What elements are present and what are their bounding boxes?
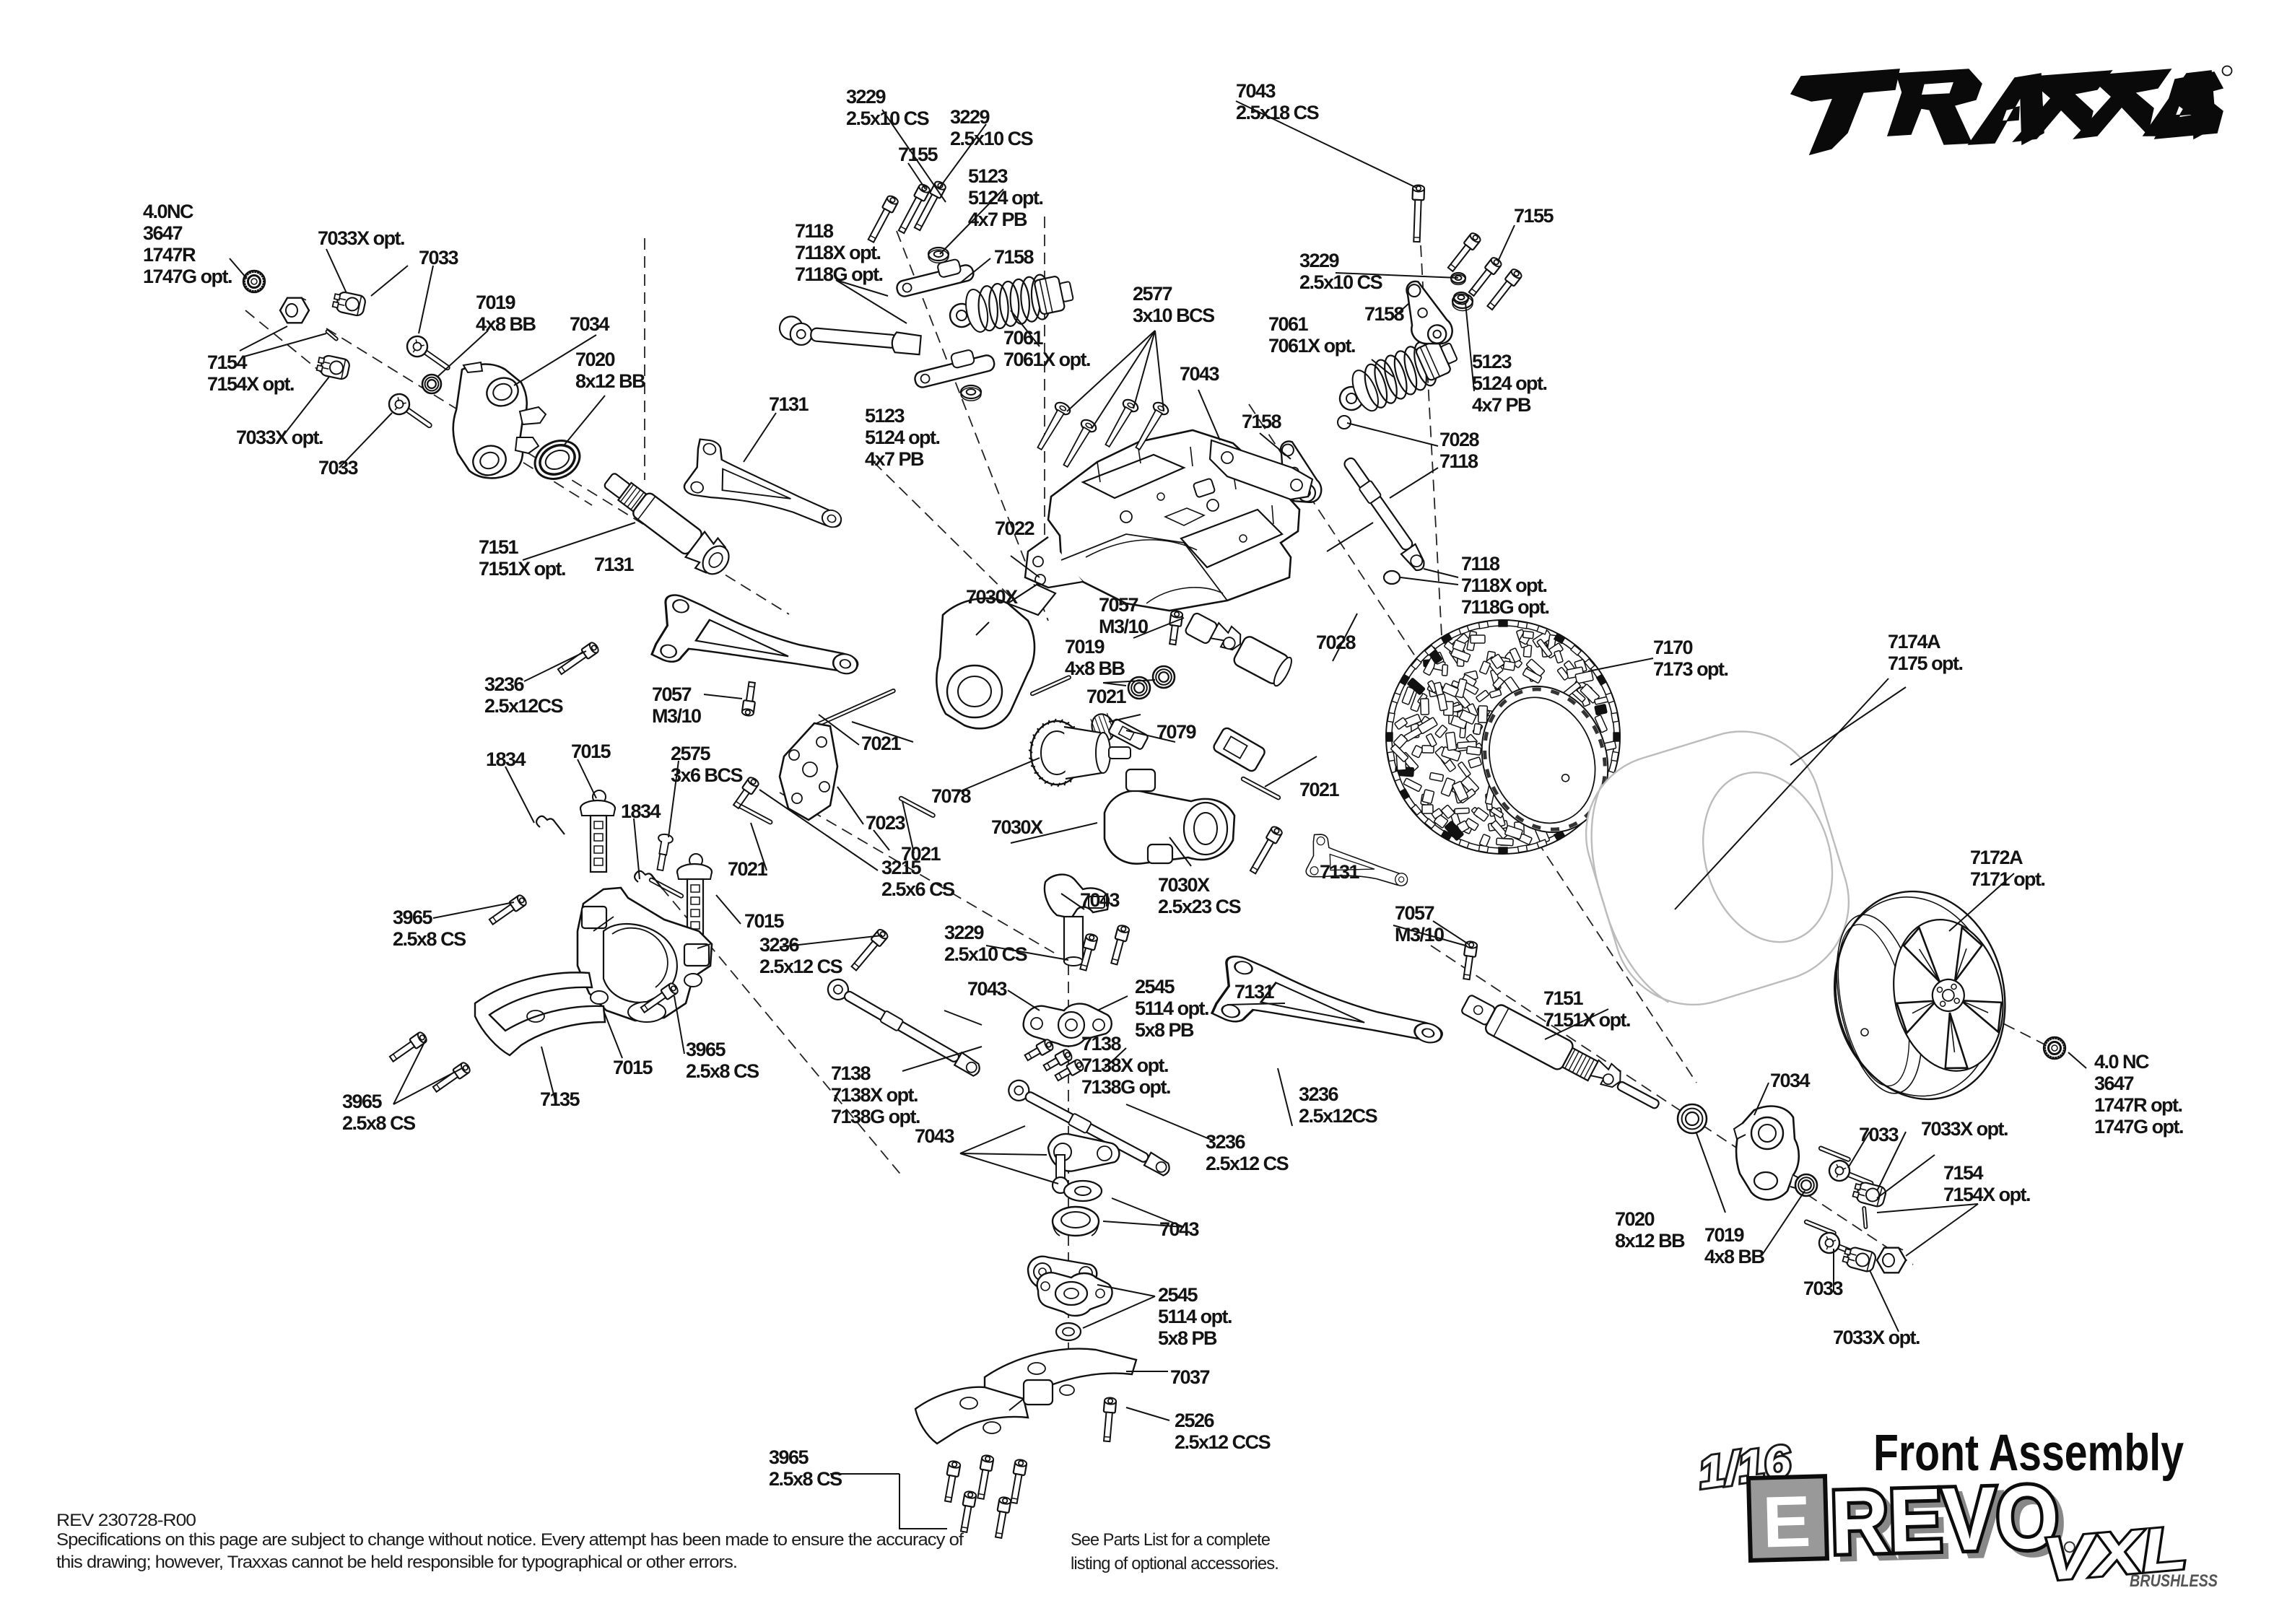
svg-text:7155: 7155 — [1514, 205, 1554, 227]
svg-text:7033X opt.: 7033X opt. — [236, 427, 323, 448]
svg-text:7023: 7023 — [866, 812, 906, 834]
svg-text:7015: 7015 — [613, 1057, 653, 1078]
svg-text:7034: 7034 — [1770, 1070, 1811, 1091]
svg-text:7131: 7131 — [594, 554, 635, 575]
svg-text:Specifications on this page ar: Specifications on this page are subject … — [56, 1530, 964, 1550]
svg-text:1834: 1834 — [486, 748, 526, 770]
svg-text:7022: 7022 — [995, 518, 1034, 539]
svg-text:7131: 7131 — [769, 393, 809, 415]
svg-text:7021: 7021 — [901, 843, 941, 865]
svg-text:7028: 7028 — [1316, 632, 1356, 653]
svg-text:7131: 7131 — [1320, 861, 1360, 883]
svg-text:7043: 7043 — [1159, 1218, 1200, 1240]
svg-text:See Parts List for a complete: See Parts List for a complete — [1071, 1530, 1271, 1550]
svg-text:7033: 7033 — [318, 457, 359, 479]
svg-text:7037: 7037 — [1170, 1366, 1210, 1388]
svg-text:7078: 7078 — [931, 785, 972, 807]
svg-text:7033: 7033 — [1859, 1124, 1899, 1145]
svg-text:7043: 7043 — [967, 978, 1008, 1000]
svg-text:7033: 7033 — [419, 247, 459, 269]
svg-text:7030X: 7030X — [966, 586, 1018, 608]
svg-text:7043: 7043 — [1080, 889, 1120, 911]
svg-text:7158: 7158 — [1242, 411, 1282, 432]
svg-text:7033X opt.: 7033X opt. — [1833, 1327, 1920, 1348]
svg-text:7043: 7043 — [1180, 363, 1220, 385]
svg-text:7015: 7015 — [571, 741, 611, 762]
svg-text:7155: 7155 — [898, 144, 938, 165]
svg-text:7079: 7079 — [1156, 721, 1197, 743]
svg-text:7033: 7033 — [1803, 1278, 1844, 1299]
svg-text:7021: 7021 — [1086, 686, 1127, 707]
svg-text:1834: 1834 — [621, 800, 661, 822]
svg-text:7043: 7043 — [915, 1125, 955, 1147]
svg-text:7135: 7135 — [540, 1088, 580, 1110]
svg-text:7158: 7158 — [994, 246, 1034, 268]
svg-text:7021: 7021 — [728, 858, 768, 880]
svg-text:7015: 7015 — [744, 910, 785, 932]
svg-text:7021: 7021 — [1299, 779, 1340, 800]
svg-text:7033X opt.: 7033X opt. — [1921, 1118, 2008, 1140]
svg-text:E: E — [1761, 1481, 1812, 1563]
svg-text:7034: 7034 — [570, 313, 610, 335]
svg-text:listing of optional accessorie: listing of optional accessories. — [1071, 1554, 1278, 1573]
svg-text:BRUSHLESS: BRUSHLESS — [2130, 1571, 2218, 1591]
svg-text:7131: 7131 — [1234, 981, 1275, 1003]
svg-text:REV 230728-R00: REV 230728-R00 — [56, 1511, 196, 1530]
svg-text:7021: 7021 — [861, 733, 902, 754]
svg-text:7033X opt.: 7033X opt. — [318, 227, 404, 249]
svg-text:7030X: 7030X — [991, 816, 1043, 838]
svg-text:REVO: REVO — [1829, 1467, 2060, 1573]
svg-text:7158: 7158 — [1364, 303, 1405, 325]
svg-text:70287118: 70287118 — [1439, 429, 1480, 472]
svg-text:this drawing; however, Traxxas: this drawing; however, Traxxas cannot be… — [56, 1553, 737, 1572]
